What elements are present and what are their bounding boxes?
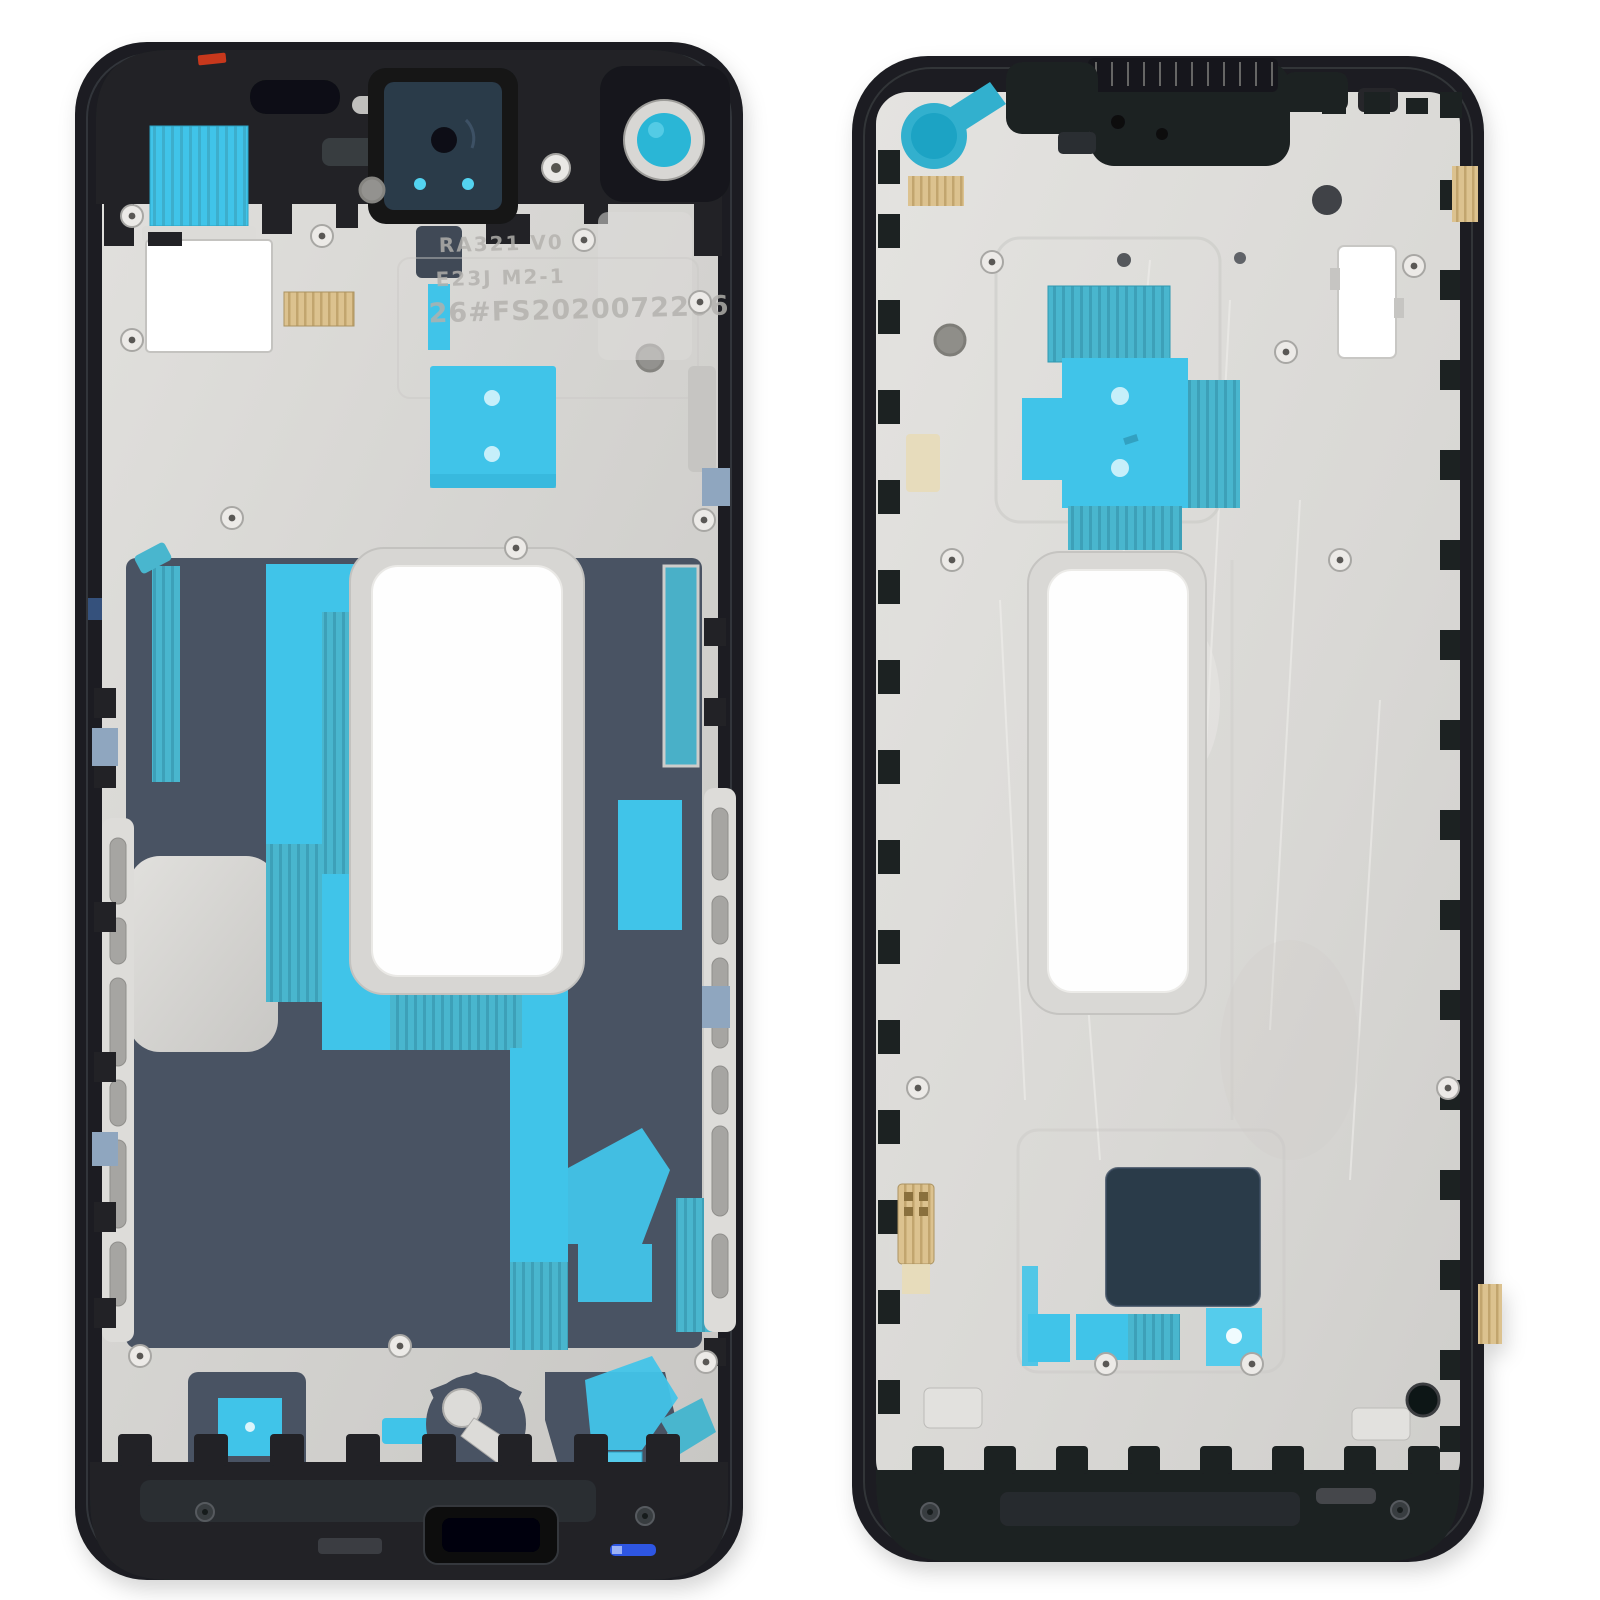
mount-post-center: [551, 163, 561, 173]
side-rail-bar: [688, 366, 716, 472]
adhesive-patch-top-left: [142, 126, 256, 242]
camera-lens-opening: [600, 66, 730, 202]
engraved-model-line2: E23J M2-1: [435, 264, 566, 291]
tan-patch-left: [908, 176, 964, 206]
gold-flex-connector: [898, 1184, 934, 1294]
camera-hole: [431, 127, 457, 153]
white-cutout-square: [146, 240, 272, 352]
silver-tab: [924, 1388, 982, 1428]
silver-tab: [1352, 1408, 1410, 1440]
photo-canvas: RA321 V0 E23J M2-1 26#FS2020072206: [0, 0, 1600, 1600]
display-cutout-slot: [350, 548, 584, 994]
product-photo: RA321 V0 E23J M2-1 26#FS2020072206: [0, 0, 1600, 1600]
adhesive-tape-square: [430, 366, 556, 488]
display-cutout-slot-right: [1028, 552, 1206, 1014]
plate-hole: [935, 325, 965, 355]
embossed-area: [598, 212, 692, 360]
pale-tab: [906, 434, 940, 492]
earpiece-slot: [250, 80, 340, 114]
gold-patch-bottom-right: [1478, 1284, 1502, 1344]
right-frame-photo: [852, 56, 1502, 1562]
left-frame-photo: RA321 V0 E23J M2-1 26#FS2020072206: [75, 42, 743, 1580]
cutout-tab: [148, 232, 182, 246]
dark-hole: [1312, 185, 1342, 215]
plate-hole: [360, 178, 384, 202]
engraved-model-line1: RA321 V0: [438, 230, 564, 257]
tan-patch-right: [1452, 166, 1478, 222]
screw-hole-black: [1407, 1384, 1439, 1416]
white-cutout-square-right: [1330, 246, 1404, 358]
right-frame-right-teeth: [1440, 180, 1460, 1452]
gold-contact-patch: [284, 292, 354, 326]
